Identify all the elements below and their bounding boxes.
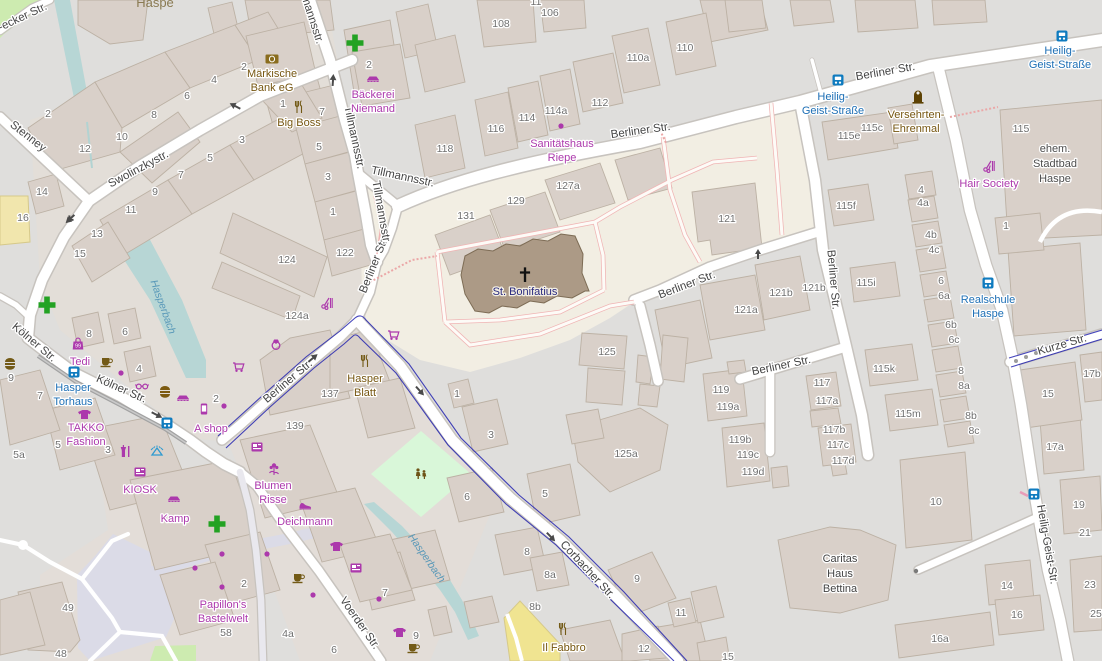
svg-text:Blumen: Blumen <box>254 480 291 492</box>
svg-text:115i: 115i <box>856 277 875 289</box>
svg-text:119d: 119d <box>742 466 765 478</box>
svg-text:11: 11 <box>126 204 137 216</box>
svg-text:Versehrten-: Versehrten- <box>888 109 945 121</box>
svg-text:15: 15 <box>1042 388 1054 400</box>
svg-text:121a: 121a <box>734 304 758 316</box>
svg-text:7: 7 <box>382 587 388 599</box>
svg-text:8: 8 <box>524 546 530 558</box>
svg-text:ehem.: ehem. <box>1040 143 1071 155</box>
svg-text:16: 16 <box>17 212 29 224</box>
svg-text:Ehrenmal: Ehrenmal <box>892 123 939 135</box>
svg-text:Riepe: Riepe <box>548 152 577 164</box>
svg-text:6b: 6b <box>945 319 957 331</box>
svg-text:9: 9 <box>8 372 14 384</box>
svg-text:115m: 115m <box>895 408 921 420</box>
svg-text:110a: 110a <box>627 52 650 64</box>
svg-text:4b: 4b <box>925 229 937 241</box>
svg-text:9: 9 <box>152 186 158 198</box>
svg-text:137: 137 <box>321 388 339 400</box>
svg-text:121b: 121b <box>769 287 793 299</box>
svg-text:4: 4 <box>136 363 142 375</box>
svg-text:7: 7 <box>37 390 43 402</box>
svg-text:Bäckerei: Bäckerei <box>352 89 395 101</box>
svg-text:125: 125 <box>598 346 616 358</box>
svg-text:8b: 8b <box>965 410 977 422</box>
svg-text:129: 129 <box>507 195 525 207</box>
svg-text:23: 23 <box>1084 579 1096 591</box>
svg-text:116: 116 <box>488 123 505 135</box>
svg-text:117: 117 <box>814 377 831 389</box>
svg-text:Torhaus: Torhaus <box>53 396 93 408</box>
svg-text:6c: 6c <box>948 334 959 346</box>
svg-text:9: 9 <box>634 573 640 585</box>
svg-text:117d: 117d <box>832 455 855 467</box>
svg-text:115k: 115k <box>873 363 896 375</box>
svg-text:Caritas: Caritas <box>823 553 858 565</box>
svg-text:KIOSK: KIOSK <box>123 484 157 496</box>
svg-text:Fashion: Fashion <box>66 436 105 448</box>
svg-text:3: 3 <box>488 429 494 441</box>
svg-text:8: 8 <box>151 109 157 121</box>
svg-text:6a: 6a <box>938 290 950 302</box>
svg-text:Heilig-: Heilig- <box>817 91 849 103</box>
svg-text:Hasper: Hasper <box>347 373 383 385</box>
svg-text:58: 58 <box>220 627 232 639</box>
svg-text:5: 5 <box>542 488 548 500</box>
svg-text:Haspe: Haspe <box>136 0 174 10</box>
svg-text:4a: 4a <box>282 628 294 640</box>
svg-text:115: 115 <box>1013 123 1030 135</box>
svg-text:3: 3 <box>239 134 245 146</box>
svg-text:124a: 124a <box>285 310 309 322</box>
svg-text:117c: 117c <box>827 439 849 451</box>
svg-text:124: 124 <box>278 254 296 266</box>
svg-text:49: 49 <box>62 602 74 614</box>
svg-text:Deichmann: Deichmann <box>277 516 333 528</box>
svg-text:119c: 119c <box>737 449 759 461</box>
svg-text:114a: 114a <box>545 105 568 117</box>
svg-text:8b: 8b <box>529 601 541 613</box>
svg-text:Bettina: Bettina <box>823 583 858 595</box>
svg-text:8c: 8c <box>968 425 979 437</box>
svg-text:119a: 119a <box>717 401 740 413</box>
svg-text:19: 19 <box>1073 499 1085 511</box>
svg-text:119b: 119b <box>729 434 752 446</box>
svg-text:1: 1 <box>280 98 286 110</box>
svg-text:12: 12 <box>638 643 650 655</box>
svg-text:7: 7 <box>178 169 184 181</box>
svg-text:6: 6 <box>184 90 190 102</box>
svg-text:118: 118 <box>437 143 454 155</box>
svg-text:11: 11 <box>676 607 687 619</box>
svg-text:12: 12 <box>79 143 91 155</box>
svg-text:1: 1 <box>330 206 336 218</box>
svg-text:Niemand: Niemand <box>351 103 395 115</box>
svg-text:5: 5 <box>207 152 213 164</box>
svg-text:3: 3 <box>105 444 111 456</box>
svg-text:8: 8 <box>86 328 92 340</box>
svg-text:115e: 115e <box>838 130 861 142</box>
svg-text:Bank eG: Bank eG <box>251 82 294 94</box>
svg-text:Risse: Risse <box>259 494 287 506</box>
svg-text:Stadtbad: Stadtbad <box>1033 158 1077 170</box>
svg-text:17b: 17b <box>1083 368 1101 380</box>
svg-text:122: 122 <box>336 247 354 259</box>
svg-text:1: 1 <box>1003 220 1009 232</box>
svg-text:4: 4 <box>918 184 924 196</box>
svg-text:8a: 8a <box>958 380 970 392</box>
svg-text:Kamp: Kamp <box>161 513 190 525</box>
svg-text:16: 16 <box>1011 609 1023 621</box>
svg-text:119: 119 <box>713 384 730 396</box>
svg-text:Tedi: Tedi <box>70 356 90 368</box>
svg-text:1: 1 <box>454 388 460 400</box>
svg-text:3: 3 <box>325 171 331 183</box>
svg-text:17a: 17a <box>1046 441 1064 453</box>
svg-text:117a: 117a <box>816 395 839 407</box>
svg-text:Heilig-: Heilig- <box>1044 45 1076 57</box>
svg-text:Haspe: Haspe <box>1039 173 1071 185</box>
svg-text:2: 2 <box>213 393 219 405</box>
svg-text:127a: 127a <box>556 180 580 192</box>
svg-text:A shop: A shop <box>194 423 228 435</box>
svg-text:Hasper: Hasper <box>55 382 91 394</box>
svg-text:Märkische: Märkische <box>247 68 297 80</box>
svg-text:5: 5 <box>316 141 322 153</box>
svg-text:Blatt: Blatt <box>354 387 376 399</box>
svg-text:Hair Society: Hair Society <box>959 178 1019 190</box>
svg-text:Geist-Straße: Geist-Straße <box>802 105 864 117</box>
svg-text:14: 14 <box>1001 580 1013 592</box>
svg-text:Haus: Haus <box>827 568 853 580</box>
svg-text:2: 2 <box>45 108 51 120</box>
svg-text:125a: 125a <box>614 448 638 460</box>
svg-text:4: 4 <box>211 74 217 86</box>
svg-text:6: 6 <box>122 326 128 338</box>
svg-text:15: 15 <box>74 248 86 260</box>
svg-text:115f: 115f <box>836 200 856 212</box>
svg-text:2: 2 <box>241 61 247 73</box>
svg-text:14: 14 <box>36 186 48 198</box>
svg-text:4c: 4c <box>928 244 939 256</box>
svg-text:10: 10 <box>930 496 942 508</box>
svg-text:7: 7 <box>319 106 325 118</box>
svg-text:6: 6 <box>331 644 337 656</box>
svg-text:8a: 8a <box>544 569 556 581</box>
svg-text:131: 131 <box>457 210 475 222</box>
svg-text:15: 15 <box>722 651 734 661</box>
svg-text:6: 6 <box>938 275 944 287</box>
svg-text:10: 10 <box>116 131 128 143</box>
svg-text:112: 112 <box>592 97 609 109</box>
svg-text:Bastelwelt: Bastelwelt <box>198 613 248 625</box>
svg-text:115c: 115c <box>861 122 883 134</box>
svg-text:4a: 4a <box>917 197 929 209</box>
svg-text:Sanitätshaus: Sanitätshaus <box>530 138 594 150</box>
svg-text:Realschule: Realschule <box>961 294 1015 306</box>
svg-text:117b: 117b <box>823 424 846 436</box>
svg-text:✝: ✝ <box>517 265 534 287</box>
svg-text:108: 108 <box>492 18 510 30</box>
svg-text:13: 13 <box>91 228 103 240</box>
svg-text:16a: 16a <box>931 633 949 645</box>
svg-text:21: 21 <box>1079 527 1091 539</box>
svg-text:5a: 5a <box>13 449 25 461</box>
svg-text:110: 110 <box>677 42 694 54</box>
svg-text:139: 139 <box>286 420 304 432</box>
svg-text:Papillon's: Papillon's <box>200 599 247 611</box>
svg-text:25: 25 <box>1090 608 1102 620</box>
svg-text:St. Bonifatius: St. Bonifatius <box>493 286 558 298</box>
svg-text:2: 2 <box>241 578 247 590</box>
svg-text:Il Fabbro: Il Fabbro <box>542 642 585 654</box>
svg-text:106: 106 <box>541 7 559 19</box>
svg-text:114: 114 <box>519 112 536 124</box>
svg-text:Big Boss: Big Boss <box>277 117 321 129</box>
svg-text:48: 48 <box>55 648 67 660</box>
svg-text:Geist-Straße: Geist-Straße <box>1029 59 1091 71</box>
svg-text:8: 8 <box>958 365 964 377</box>
svg-text:11: 11 <box>531 0 542 8</box>
svg-text:121b: 121b <box>802 282 826 294</box>
svg-text:121: 121 <box>718 213 736 225</box>
svg-text:2: 2 <box>366 59 372 71</box>
svg-text:Haspe: Haspe <box>972 308 1004 320</box>
svg-text:6: 6 <box>464 491 470 503</box>
svg-text:9: 9 <box>413 630 419 642</box>
svg-text:5: 5 <box>55 439 61 451</box>
svg-text:TAKKO: TAKKO <box>68 422 105 434</box>
